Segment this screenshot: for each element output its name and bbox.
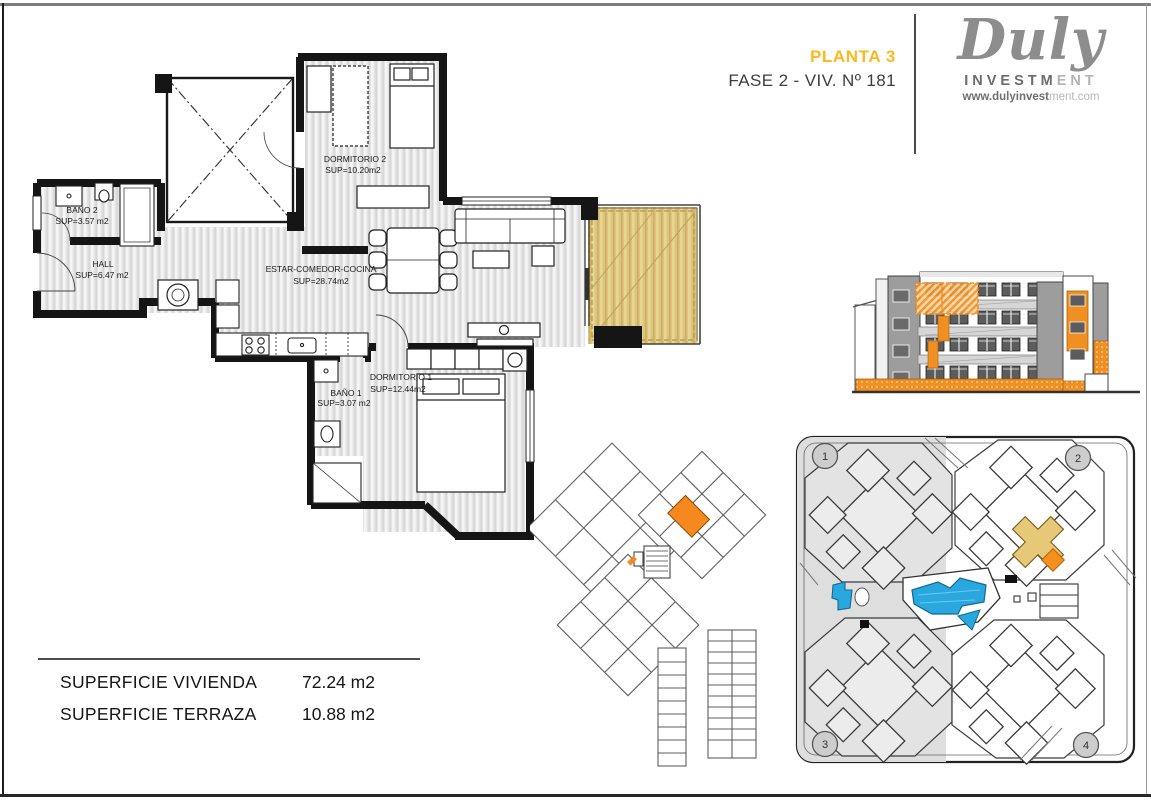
terrace-slider-door — [585, 220, 589, 326]
page-border-left — [2, 3, 4, 796]
logo-url-strong: www.dulyinvest — [963, 91, 1049, 103]
logo-investment-line: INVESTMENT — [924, 74, 1138, 89]
elevation-svg — [850, 255, 1142, 403]
logo-url: www.dulyinvestment.com — [924, 92, 1138, 104]
room-sup-bano2: SUP=3.57 m2 — [55, 216, 108, 226]
summary-label: SUPERFICIE VIVIENDA — [38, 674, 302, 692]
logo-wordmark: Duly — [924, 12, 1138, 68]
header-divider — [914, 14, 916, 154]
page-border-right — [1146, 3, 1147, 796]
entrance-mark-2 — [860, 620, 869, 628]
marker-4: 4 — [1083, 740, 1089, 752]
summary-label: SUPERFICIE TERRAZA — [38, 706, 302, 724]
keyplan-corridor — [658, 648, 686, 766]
summary-value: 72.24 m2 — [302, 674, 420, 692]
room-label-bano2: BAÑO 2 — [66, 205, 97, 215]
room-label-dormitorio1: DORMITORIO 1 — [370, 372, 432, 382]
elevation-building — [852, 272, 1140, 392]
planta-title: PLANTA 3 — [728, 48, 896, 65]
elevation-unit-highlight — [916, 283, 978, 314]
room-label-dormitorio2: DORMITORIO 2 — [324, 154, 386, 164]
room-label-bano1: BAÑO 1 — [330, 388, 361, 398]
logo-investment-light: ENT — [1057, 73, 1098, 89]
entrance-mark-1 — [1005, 575, 1017, 583]
room-sup-hall: SUP=6.47 m2 — [75, 270, 128, 280]
site-plan-svg: 1 2 3 4 — [790, 430, 1142, 770]
logo-url-light: ment.com — [1049, 91, 1100, 103]
room-sup-estar: SUP=28.74m2 — [293, 276, 349, 286]
patio-lightwell — [167, 78, 293, 222]
room-sup-dormitorio2: SUP=10.20m2 — [325, 165, 381, 175]
header: PLANTA 3 FASE 2 - VIV. Nº 181 — [728, 48, 896, 89]
dining-table — [387, 228, 439, 293]
brochure-page: PLANTA 3 FASE 2 - VIV. Nº 181 Duly INVES… — [0, 0, 1151, 802]
summary-value: 10.88 m2 — [302, 706, 420, 724]
summary-row-terraza: SUPERFICIE TERRAZA 10.88 m2 — [38, 706, 420, 724]
summary-row-vivienda: SUPERFICIE VIVIENDA 72.24 m2 — [38, 674, 420, 692]
surface-summary: SUPERFICIE VIVIENDA 72.24 m2 SUPERFICIE … — [38, 658, 420, 723]
page-border-bottom — [0, 794, 1151, 797]
page-border-top — [0, 3, 1151, 6]
fase-subtitle: FASE 2 - VIV. Nº 181 — [728, 72, 896, 89]
room-sup-bano1: SUP=3.07 m2 — [317, 398, 370, 408]
marker-3: 3 — [822, 739, 828, 751]
key-plan-svg — [530, 420, 780, 782]
side-table — [532, 246, 554, 266]
logo-investment-strong: INVESTM — [964, 73, 1056, 89]
coffee-table — [473, 251, 509, 268]
room-label-estar: ESTAR-COMEDOR-COCINA — [266, 264, 377, 274]
company-logo: Duly INVESTMENT www.dulyinvestment.com — [924, 12, 1138, 103]
marker-1: 1 — [822, 451, 828, 463]
room-sup-dormitorio1: SUP=12.44m2 — [370, 384, 426, 394]
washing-machine — [158, 280, 198, 310]
marker-2: 2 — [1075, 453, 1081, 465]
room-label-hall: HALL — [92, 259, 114, 269]
summary-rule — [38, 658, 420, 660]
